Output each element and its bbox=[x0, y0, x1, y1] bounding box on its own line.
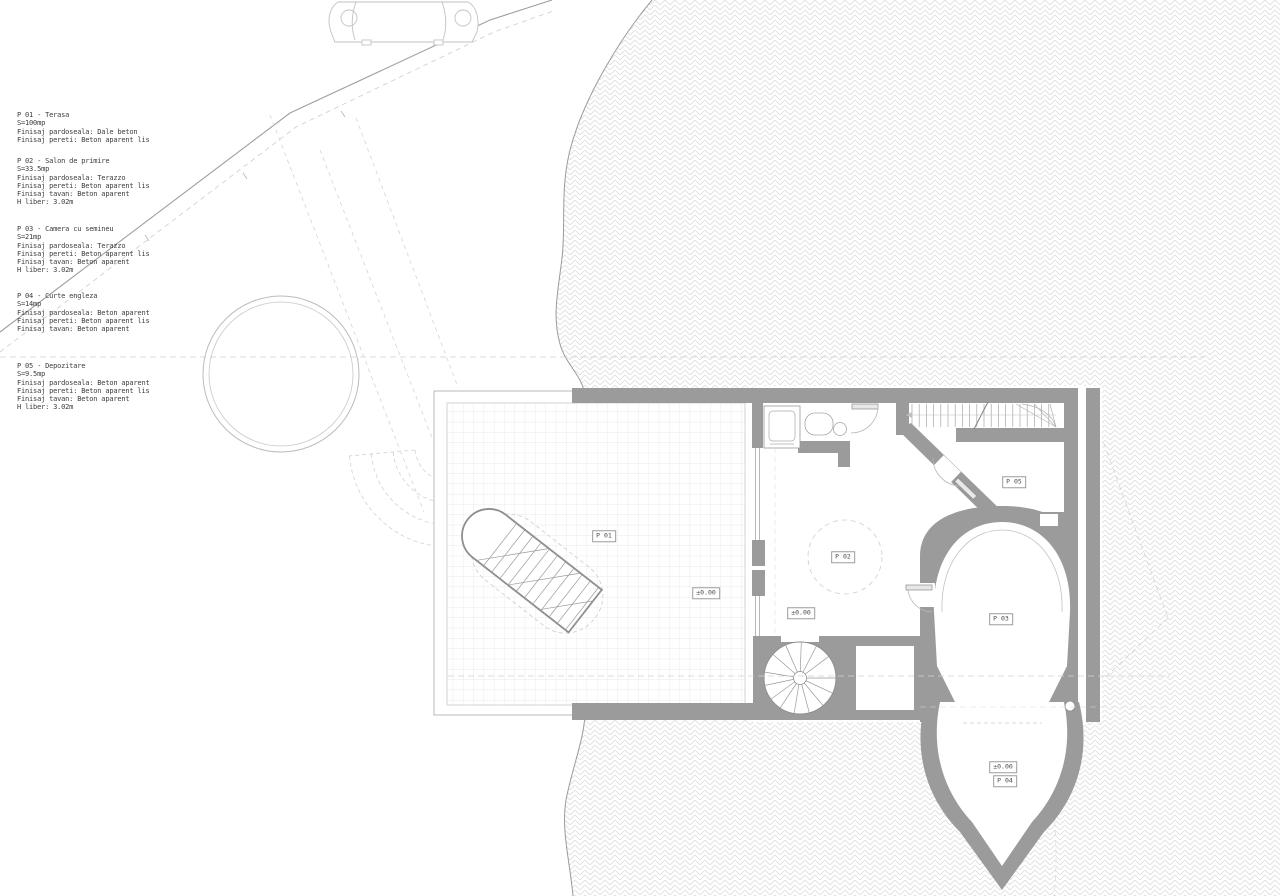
legend-room-block: P 01 - TerasaS=100mpFinisaj pardoseala: … bbox=[17, 111, 149, 144]
legend-room-block: P 05 - DepozitareS=9.5mpFinisaj pardosea… bbox=[17, 362, 149, 412]
legend-room-block: P 04 - Curte englezaS=14mpFinisaj pardos… bbox=[17, 292, 149, 333]
legend-line: Finisaj pardoseala: Beton aparent bbox=[17, 309, 149, 317]
plan-label-p02-level: ±0.00 bbox=[787, 607, 815, 619]
fan-steps bbox=[349, 450, 446, 547]
plan-label-p01: P 01 bbox=[592, 530, 616, 542]
legend-line: Finisaj pardoseala: Terazzo bbox=[17, 242, 149, 250]
plan-label-terrace-level: ±0.00 bbox=[692, 587, 720, 599]
column bbox=[1065, 701, 1075, 711]
legend-line: P 02 - Salon de primire bbox=[17, 157, 149, 165]
plan-label-p04: P 04 bbox=[993, 775, 1017, 787]
legend-line: Finisaj pardoseala: Dale beton bbox=[17, 128, 149, 136]
legend-line: Finisaj tavan: Beton aparent bbox=[17, 190, 149, 198]
terrace-area bbox=[433, 388, 757, 720]
legend-line: H liber: 3.02m bbox=[17, 198, 149, 206]
legend-line: H liber: 3.02m bbox=[17, 403, 149, 411]
legend: P 01 - TerasaS=100mpFinisaj pardoseala: … bbox=[17, 0, 227, 896]
bath-door-leaf bbox=[852, 404, 878, 409]
legend-line: Finisaj tavan: Beton aparent bbox=[17, 258, 149, 266]
plan-label-p04-level: ±0.00 bbox=[989, 761, 1017, 773]
plan-label-p05: P 05 bbox=[1002, 476, 1026, 488]
legend-line: Finisaj pereti: Beton aparent lis bbox=[17, 250, 149, 258]
legend-line: S=14mp bbox=[17, 300, 149, 308]
legend-line: S=100mp bbox=[17, 119, 149, 127]
legend-line: Finisaj pereti: Beton aparent lis bbox=[17, 317, 149, 325]
legend-line: Finisaj tavan: Beton aparent bbox=[17, 325, 149, 333]
legend-room-block: P 02 - Salon de primireS=33.5mpFinisaj p… bbox=[17, 157, 149, 207]
passage-to-courtyard bbox=[962, 698, 1042, 726]
legend-line: Finisaj pardoseala: Terazzo bbox=[17, 174, 149, 182]
legend-line: Finisaj tavan: Beton aparent bbox=[17, 395, 149, 403]
legend-line: P 03 - Camera cu semineu bbox=[17, 225, 149, 233]
plan-label-p02: P 02 bbox=[831, 551, 855, 563]
legend-line: Finisaj pereti: Beton aparent lis bbox=[17, 387, 149, 395]
legend-line: P 05 - Depozitare bbox=[17, 362, 149, 370]
car-icon bbox=[329, 2, 478, 45]
plan-label-p03: P 03 bbox=[989, 613, 1013, 625]
legend-line: S=21mp bbox=[17, 233, 149, 241]
legend-room-block: P 03 - Camera cu semineuS=21mpFinisaj pa… bbox=[17, 225, 149, 275]
legend-line: H liber: 3.02m bbox=[17, 266, 149, 274]
storage-niche bbox=[856, 646, 914, 710]
legend-line: Finisaj pereti: Beton aparent lis bbox=[17, 136, 149, 144]
floor-plan-sheet: P 01 - TerasaS=100mpFinisaj pardoseala: … bbox=[0, 0, 1280, 896]
legend-line: Finisaj pereti: Beton aparent lis bbox=[17, 182, 149, 190]
legend-line: P 01 - Terasa bbox=[17, 111, 149, 119]
legend-line: S=33.5mp bbox=[17, 165, 149, 173]
legend-line: P 04 - Curte engleza bbox=[17, 292, 149, 300]
legend-line: S=9.5mp bbox=[17, 370, 149, 378]
legend-line: Finisaj pardoseala: Beton aparent bbox=[17, 379, 149, 387]
